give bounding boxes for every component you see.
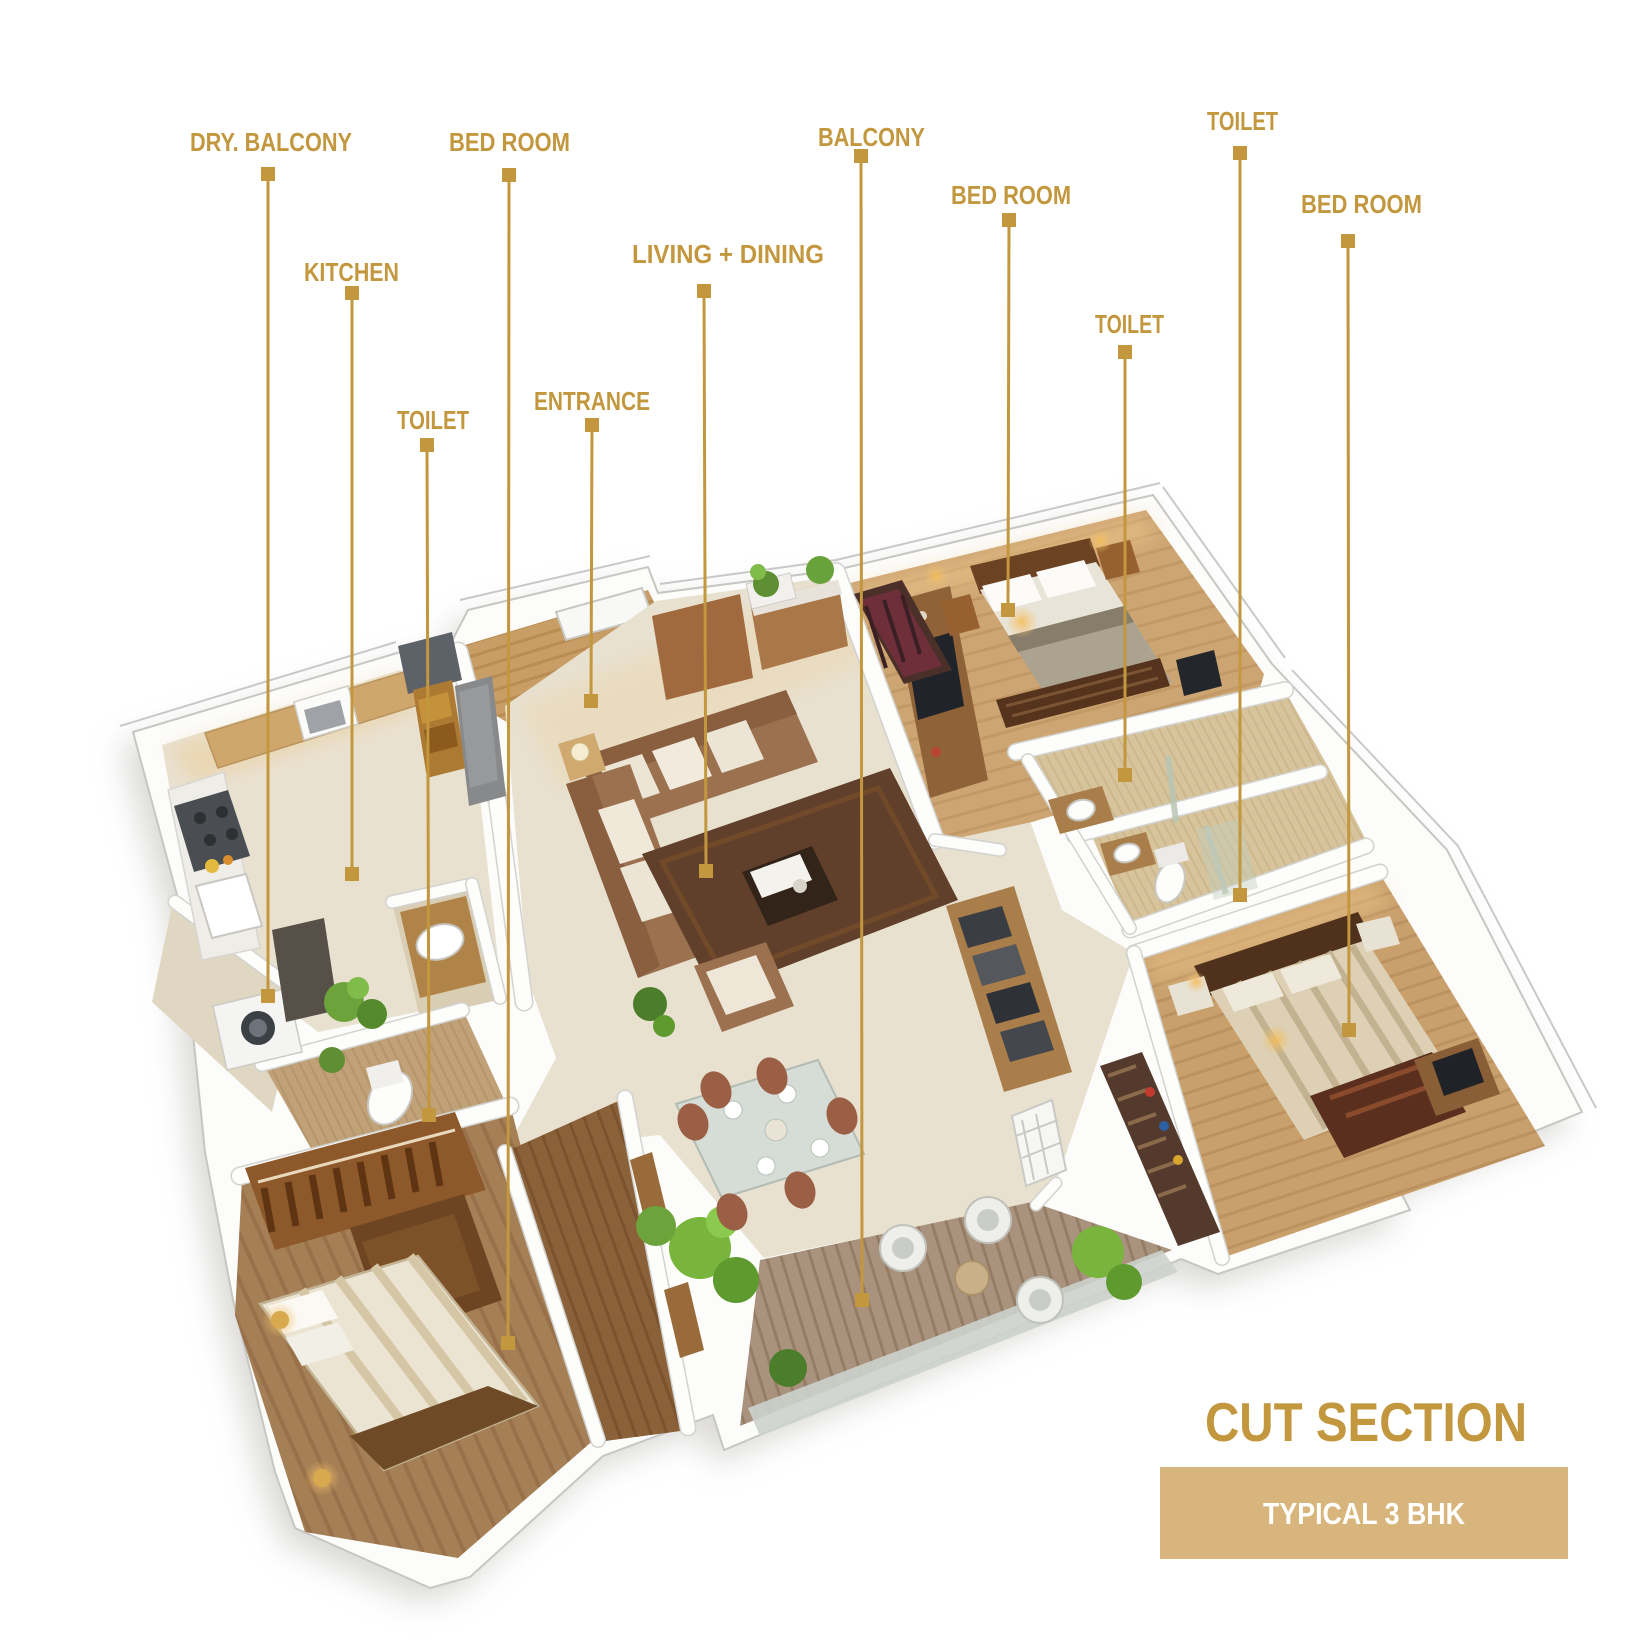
svg-text:LIVING + DINING: LIVING + DINING (632, 239, 824, 269)
svg-text:ENTRANCE: ENTRANCE (534, 386, 650, 416)
svg-text:CUT SECTION: CUT SECTION (1205, 1391, 1527, 1453)
svg-text:BED ROOM: BED ROOM (951, 180, 1071, 210)
svg-text:TOILET: TOILET (1095, 309, 1164, 339)
svg-text:TOILET: TOILET (397, 405, 469, 435)
svg-text:TOILET: TOILET (1207, 106, 1278, 136)
svg-text:BED ROOM: BED ROOM (449, 127, 570, 157)
svg-text:BED ROOM: BED ROOM (1301, 189, 1422, 219)
svg-text:DRY. BALCONY: DRY. BALCONY (190, 127, 352, 157)
svg-text:BALCONY: BALCONY (818, 122, 925, 152)
svg-text:KITCHEN: KITCHEN (304, 257, 399, 287)
svg-text:TYPICAL 3 BHK: TYPICAL 3 BHK (1263, 1496, 1466, 1531)
